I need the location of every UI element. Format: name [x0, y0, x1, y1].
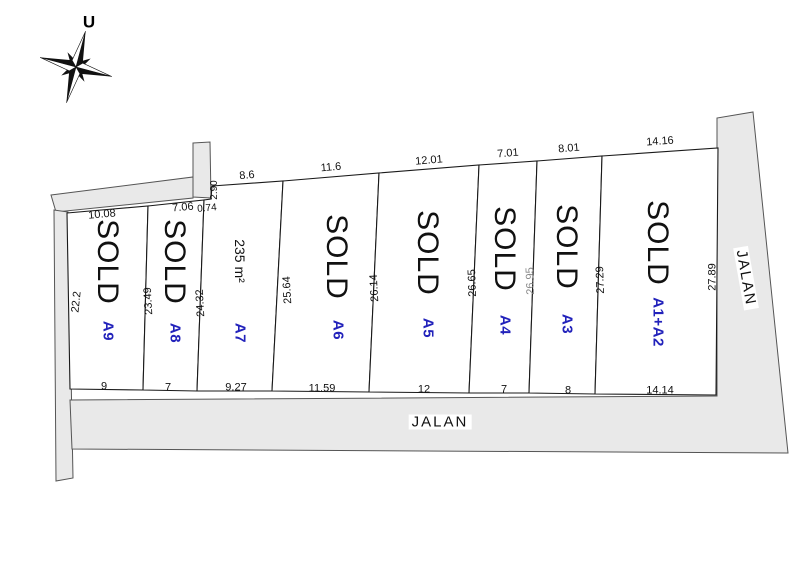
plot-label-a4: A4: [498, 315, 513, 335]
plot-label-a7: A7: [233, 323, 248, 343]
status-sold-a3: SOLD: [551, 204, 581, 290]
dim-side-a7-a6: 25.64: [282, 276, 294, 304]
dim-top-a6: 11.6: [320, 162, 341, 175]
status-sold-a4: SOLD: [489, 206, 519, 292]
status-sold-a8: SOLD: [159, 219, 189, 305]
plot-label-a8: A8: [168, 323, 183, 343]
status-sold-a9: SOLD: [92, 219, 122, 305]
dim-top-a8: 7.06: [172, 202, 194, 215]
plot-label-a3: A3: [560, 314, 575, 334]
area-a7: 235 m²: [233, 239, 247, 283]
plot-label-a6: A6: [331, 320, 346, 340]
dim-side-a5-a4: 26.65: [467, 269, 479, 297]
status-sold-a1a2: SOLD: [642, 200, 672, 286]
dim-bottom-a3: 8: [565, 386, 571, 397]
dim-side-a9-left: 22.2: [70, 291, 83, 313]
dim-bottom-a1a2: 14.14: [646, 386, 674, 397]
road-label-bottom: JALAN: [409, 415, 472, 430]
dim-bottom-a6: 11.59: [309, 384, 336, 395]
dim-bottom-a4: 7: [501, 385, 507, 396]
status-sold-a6: SOLD: [321, 214, 351, 300]
dim-bottom-a8: 7: [165, 383, 171, 394]
dim-bottom-a5: 12: [418, 385, 430, 396]
dim-side-a8-a7: 24.32: [195, 289, 207, 317]
plot-label-a1a2: A1+A2: [651, 297, 666, 347]
plot-label-a5: A5: [421, 318, 436, 338]
dim-side-a3-a1a2: 27.29: [595, 266, 607, 294]
dim-bottom-a7: 9.27: [225, 383, 246, 394]
dim-top-a1a2: 14.16: [646, 136, 674, 149]
status-sold-a5: SOLD: [412, 210, 442, 296]
plot-label-a9: A9: [101, 321, 116, 341]
site-plan: U 10.08 7.06 0.74 2.90 8.6 11.6 12.01 7.…: [0, 0, 804, 572]
compass-rose-icon: [31, 22, 122, 113]
dim-jog-vertical: 2.90: [210, 180, 220, 199]
dim-side-a4-a3: 26.95: [525, 267, 537, 295]
dim-jog-horizontal: 0.74: [197, 203, 217, 215]
dim-top-a4: 7.01: [497, 148, 519, 161]
dim-side-a9-a8: 23.49: [143, 287, 155, 315]
dim-side-a6-a5: 26.14: [369, 274, 381, 302]
dim-top-a7: 8.6: [239, 170, 255, 182]
dim-side-a1a2-right: 27.89: [708, 263, 719, 291]
dim-bottom-a9: 9: [101, 382, 107, 393]
dim-top-a3: 8.01: [558, 143, 580, 156]
compass-north-label: U: [83, 14, 95, 31]
